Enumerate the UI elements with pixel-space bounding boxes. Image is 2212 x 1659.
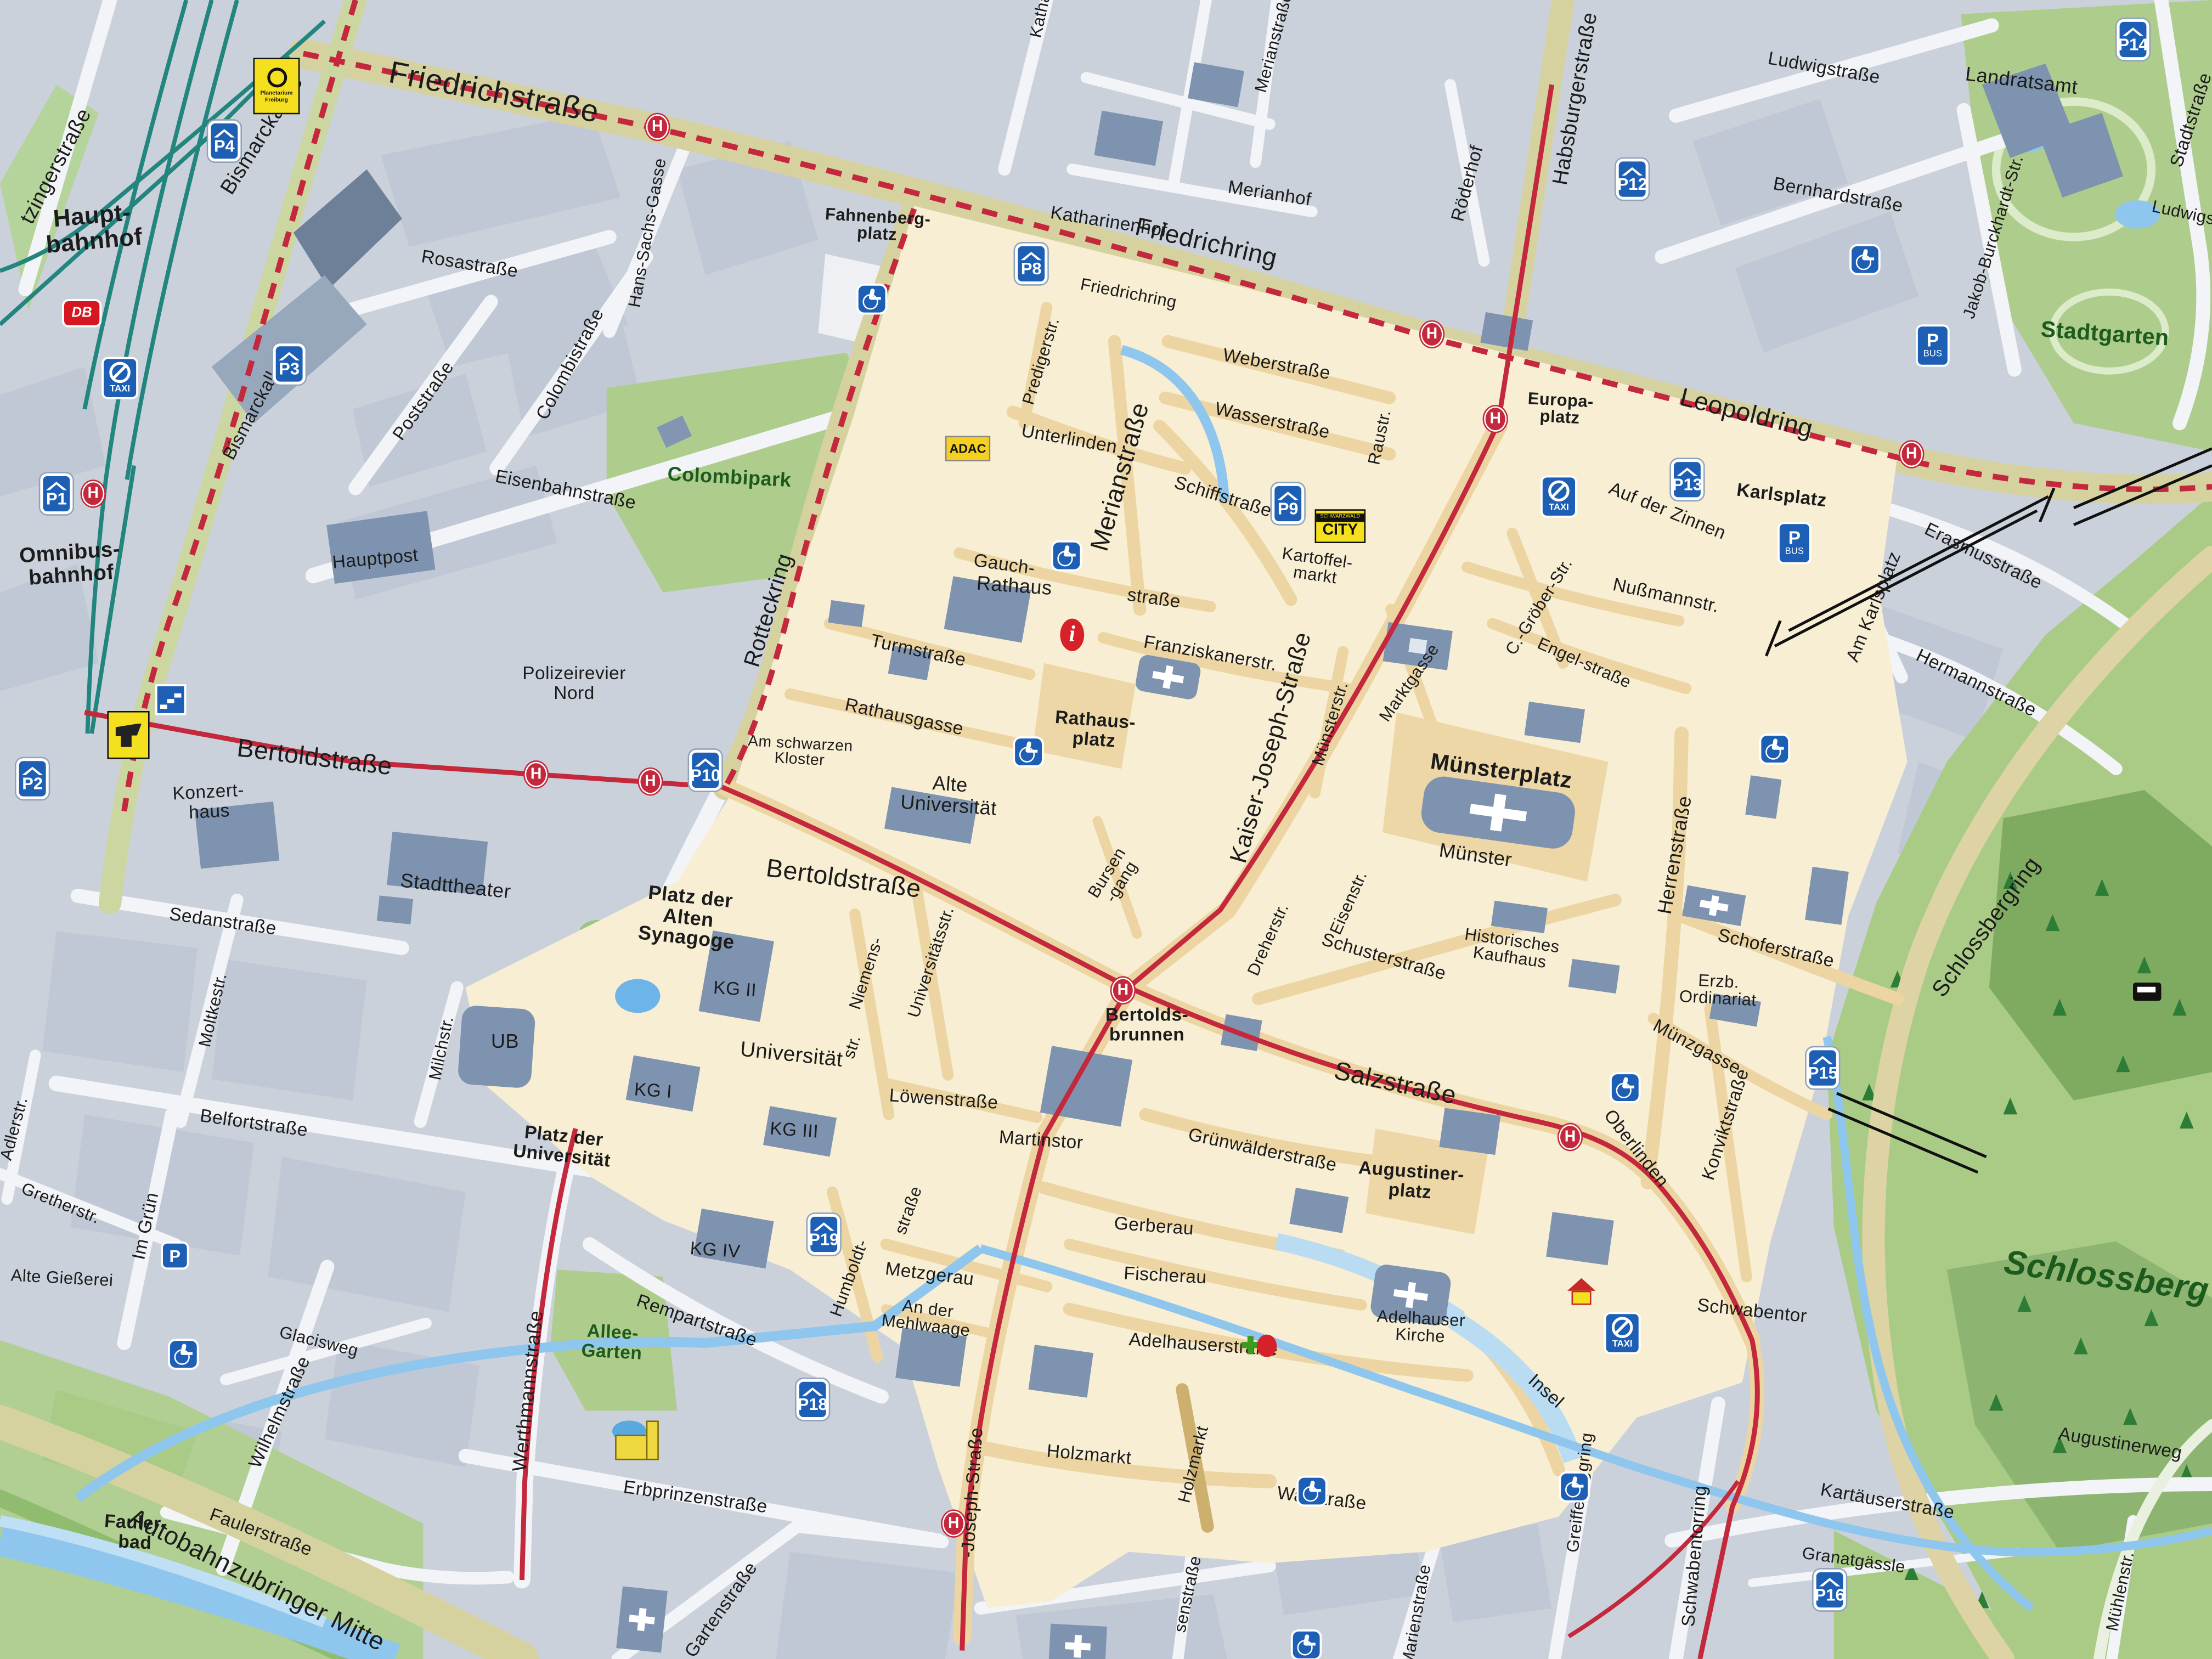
city-map: tzingerstraßeHaupt- bahnhofBismarckallee…	[0, 0, 2212, 1659]
base-map	[0, 0, 2212, 1659]
map-photo: tzingerstraßeHaupt- bahnhofBismarckallee…	[0, 0, 2212, 1659]
